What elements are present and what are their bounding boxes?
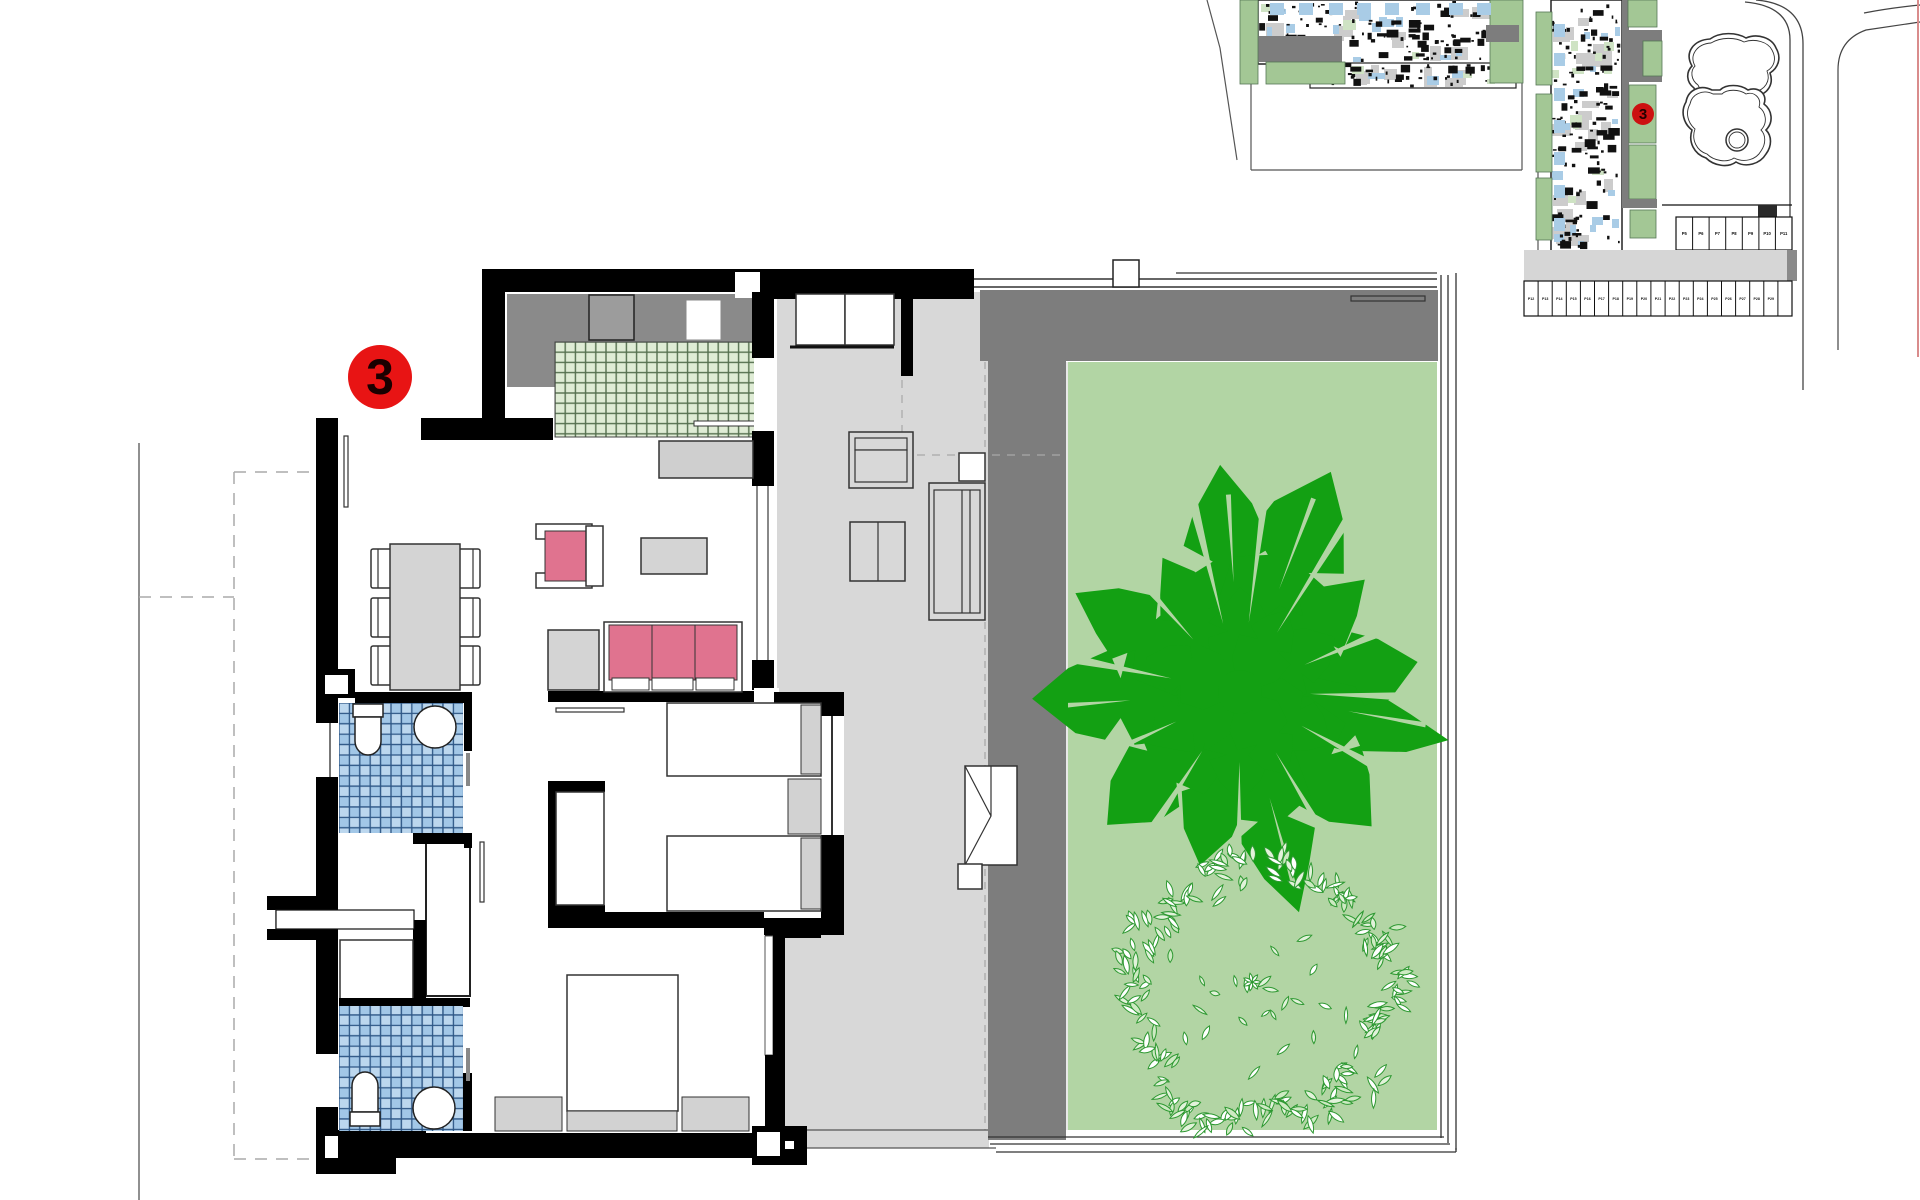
svg-text:P8: P8 (1731, 231, 1737, 236)
svg-text:P20: P20 (1641, 297, 1647, 301)
svg-text:P18: P18 (1612, 297, 1618, 301)
svg-text:P22: P22 (1669, 297, 1675, 301)
svg-text:P29: P29 (1768, 297, 1774, 301)
svg-text:P13: P13 (1542, 297, 1548, 301)
svg-text:P10: P10 (1763, 231, 1771, 236)
svg-text:P16: P16 (1584, 297, 1590, 301)
svg-text:P25: P25 (1711, 297, 1717, 301)
svg-text:3: 3 (366, 349, 394, 405)
svg-text:P7: P7 (1715, 231, 1721, 236)
svg-text:P27: P27 (1739, 297, 1745, 301)
svg-text:P19: P19 (1627, 297, 1633, 301)
svg-text:P11: P11 (1780, 231, 1788, 236)
svg-text:P28: P28 (1753, 297, 1759, 301)
svg-text:P26: P26 (1725, 297, 1731, 301)
svg-text:P21: P21 (1655, 297, 1661, 301)
svg-text:P17: P17 (1598, 297, 1604, 301)
svg-text:P14: P14 (1556, 297, 1562, 301)
svg-text:P5: P5 (1682, 231, 1688, 236)
svg-text:P9: P9 (1748, 231, 1754, 236)
svg-text:P15: P15 (1570, 297, 1576, 301)
svg-text:P23: P23 (1683, 297, 1689, 301)
svg-text:P6: P6 (1698, 231, 1704, 236)
svg-text:P24: P24 (1697, 297, 1703, 301)
svg-text:P12: P12 (1528, 297, 1534, 301)
svg-text:3: 3 (1639, 106, 1647, 123)
